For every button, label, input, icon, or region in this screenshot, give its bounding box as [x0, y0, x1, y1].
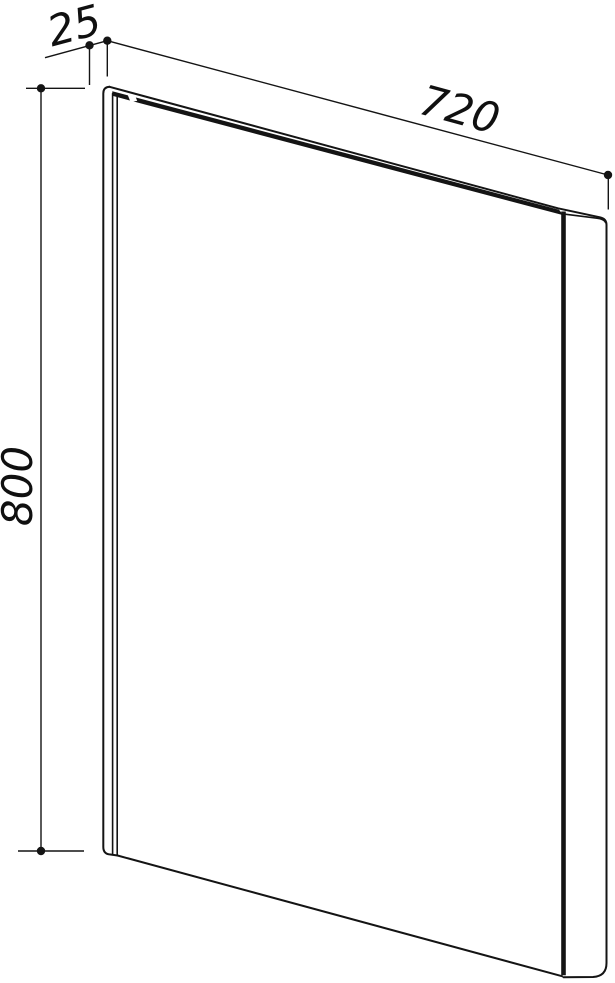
panel-top-right-sliver-line — [566, 214, 606, 222]
panel-left-edge-outer-line — [103, 87, 117, 856]
dimension-height: 800 — [0, 84, 85, 855]
dimension-dot — [604, 171, 612, 179]
panel-outer-contour-line — [110, 87, 607, 977]
panel-dimension-drawing: 25 720 800 — [0, 0, 615, 983]
dimension-dot — [37, 84, 45, 92]
drawing-canvas: 25 720 800 — [0, 0, 615, 983]
thickness-label: 25 — [42, 0, 106, 56]
dimension-thickness: 25 — [42, 0, 111, 85]
dimension-dot — [37, 847, 45, 855]
panel — [103, 87, 606, 977]
dimension-width: 720 — [107, 41, 612, 210]
width-label: 720 — [415, 75, 505, 143]
panel-bottom-edge-line — [118, 856, 563, 977]
height-label: 800 — [0, 446, 42, 526]
